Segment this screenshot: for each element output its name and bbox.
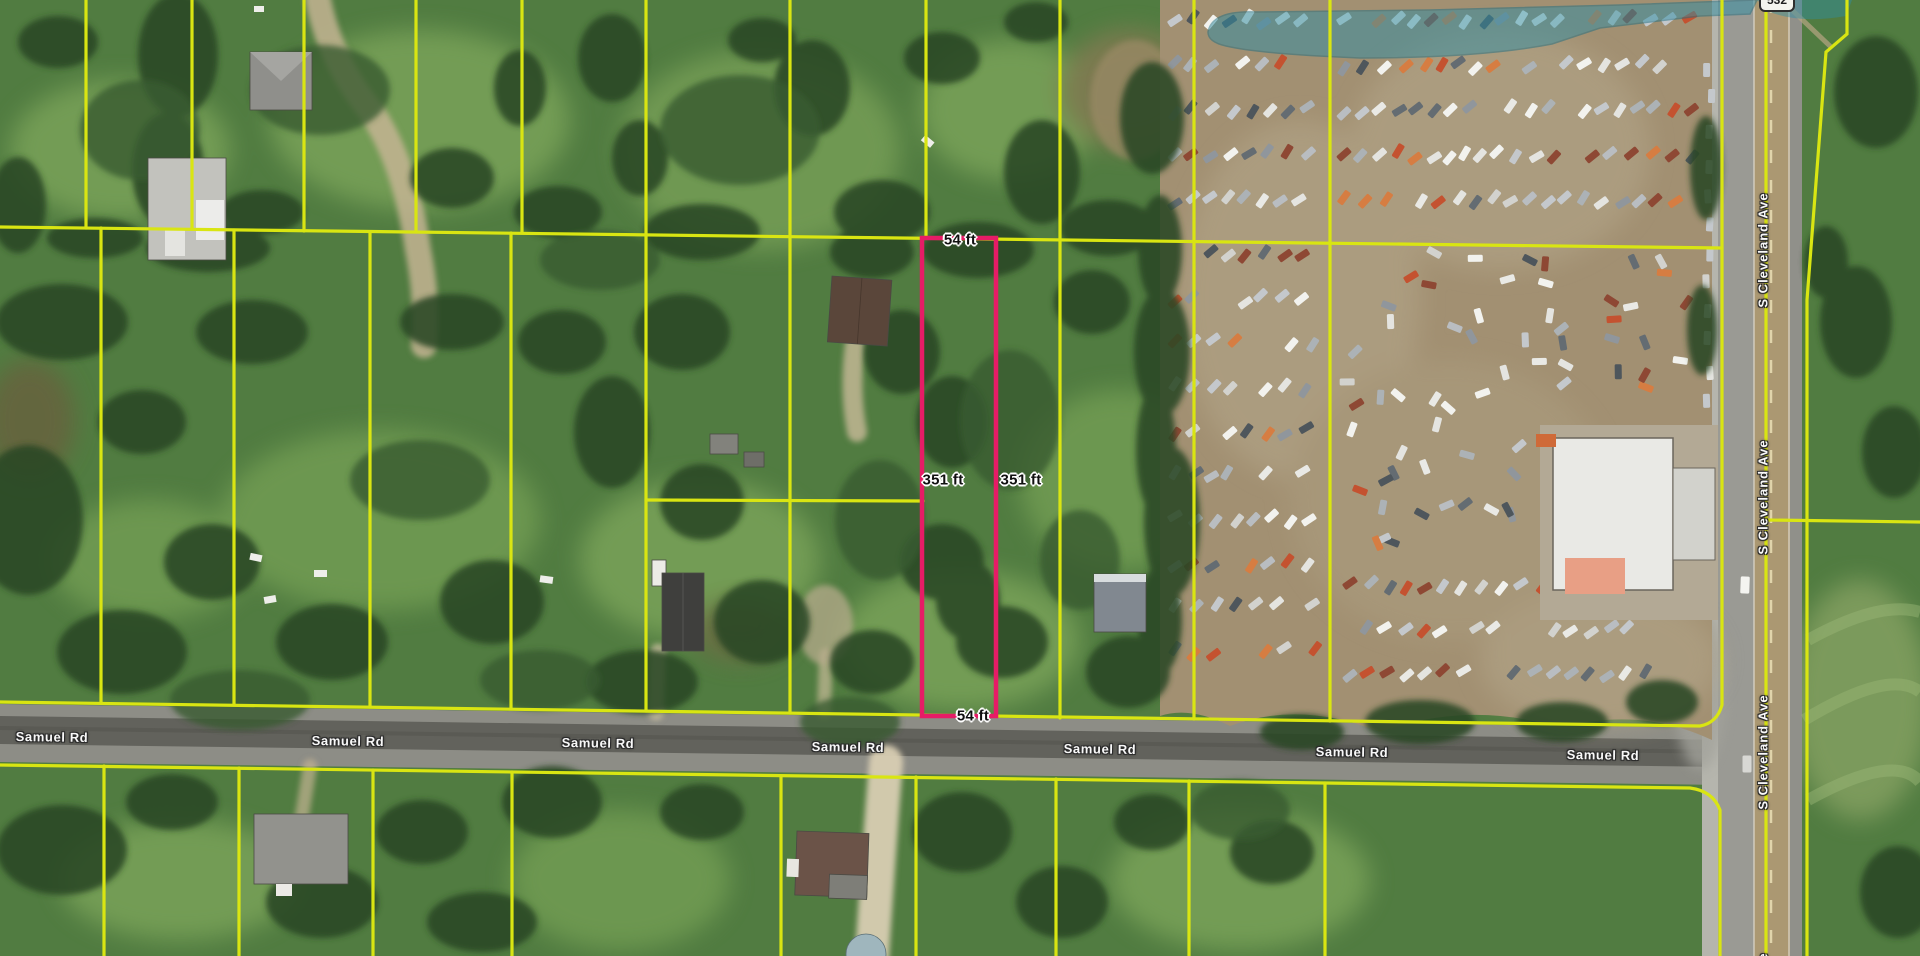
salvage-building: [1536, 425, 1718, 620]
parcel-map-canvas[interactable]: Samuel Rd Samuel Rd Samuel Rd Samuel Rd …: [0, 0, 1920, 956]
route-shield-532: 532: [1759, 0, 1795, 12]
satellite-imagery: [0, 0, 1920, 956]
